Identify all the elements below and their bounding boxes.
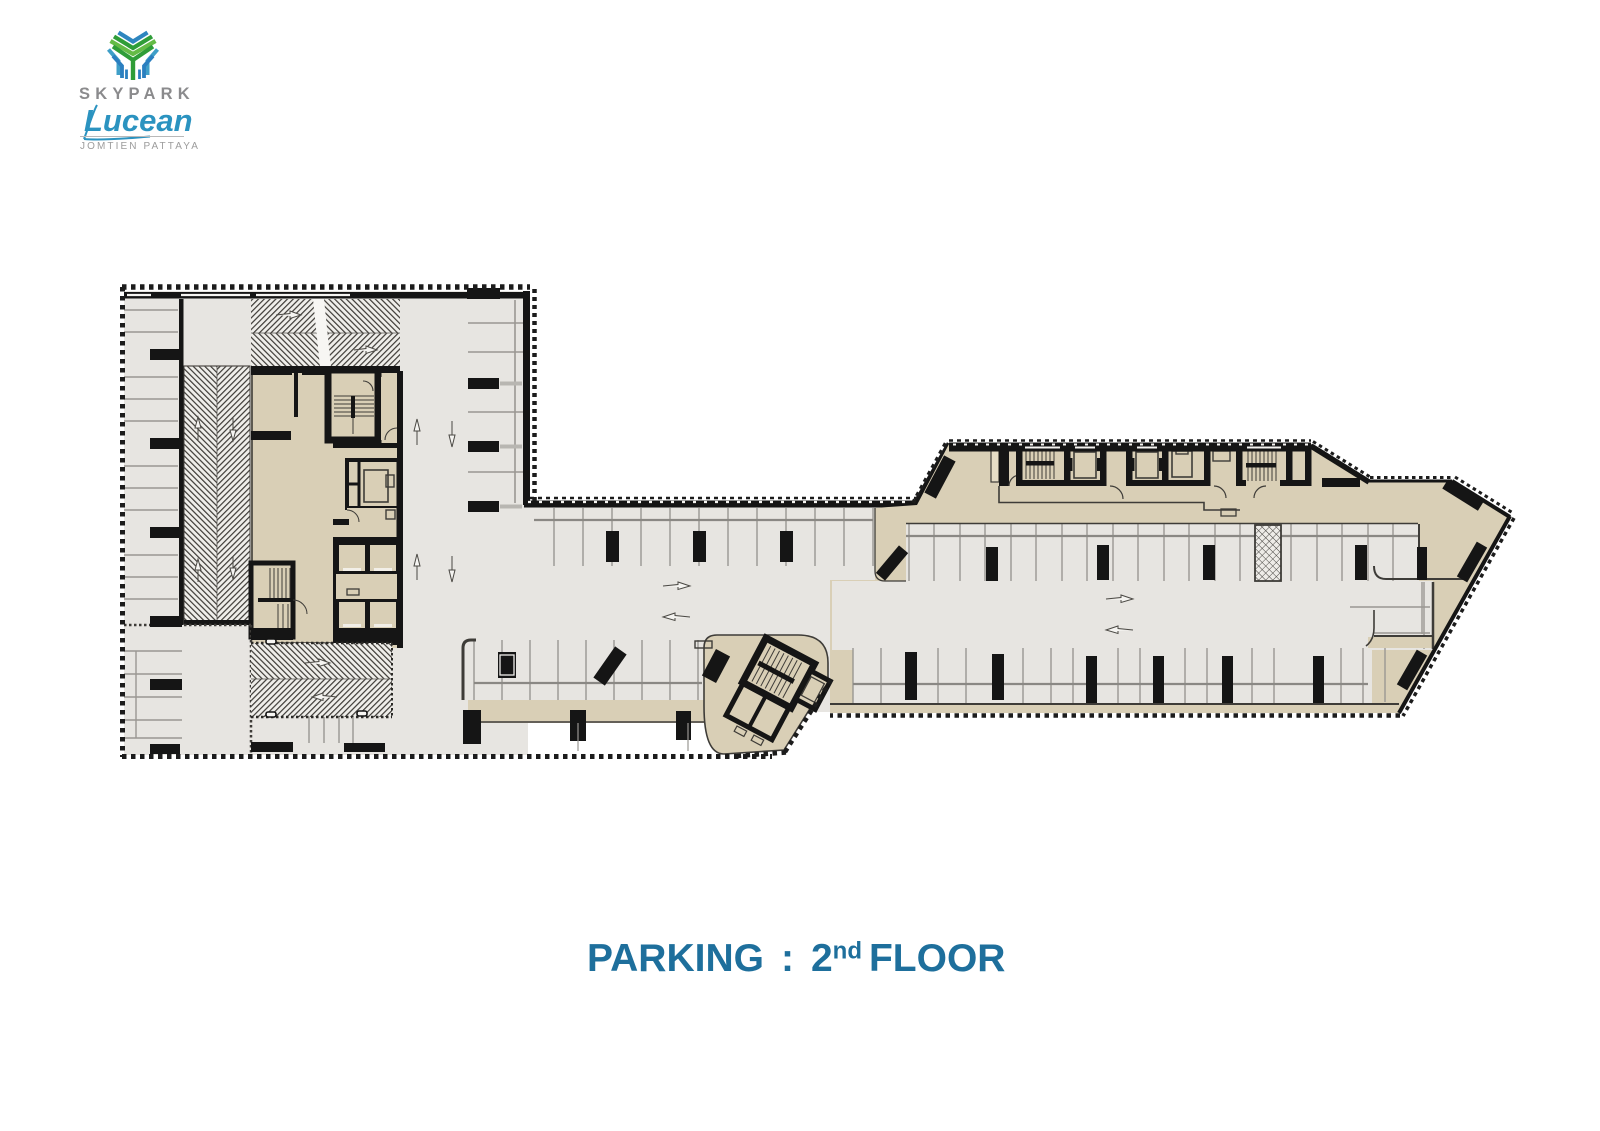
- svg-text:Lucean: Lucean: [84, 103, 193, 138]
- svg-text:JOMTIEN PATTAYA: JOMTIEN PATTAYA: [80, 141, 200, 152]
- svg-text:SKYPARK: SKYPARK: [79, 85, 195, 103]
